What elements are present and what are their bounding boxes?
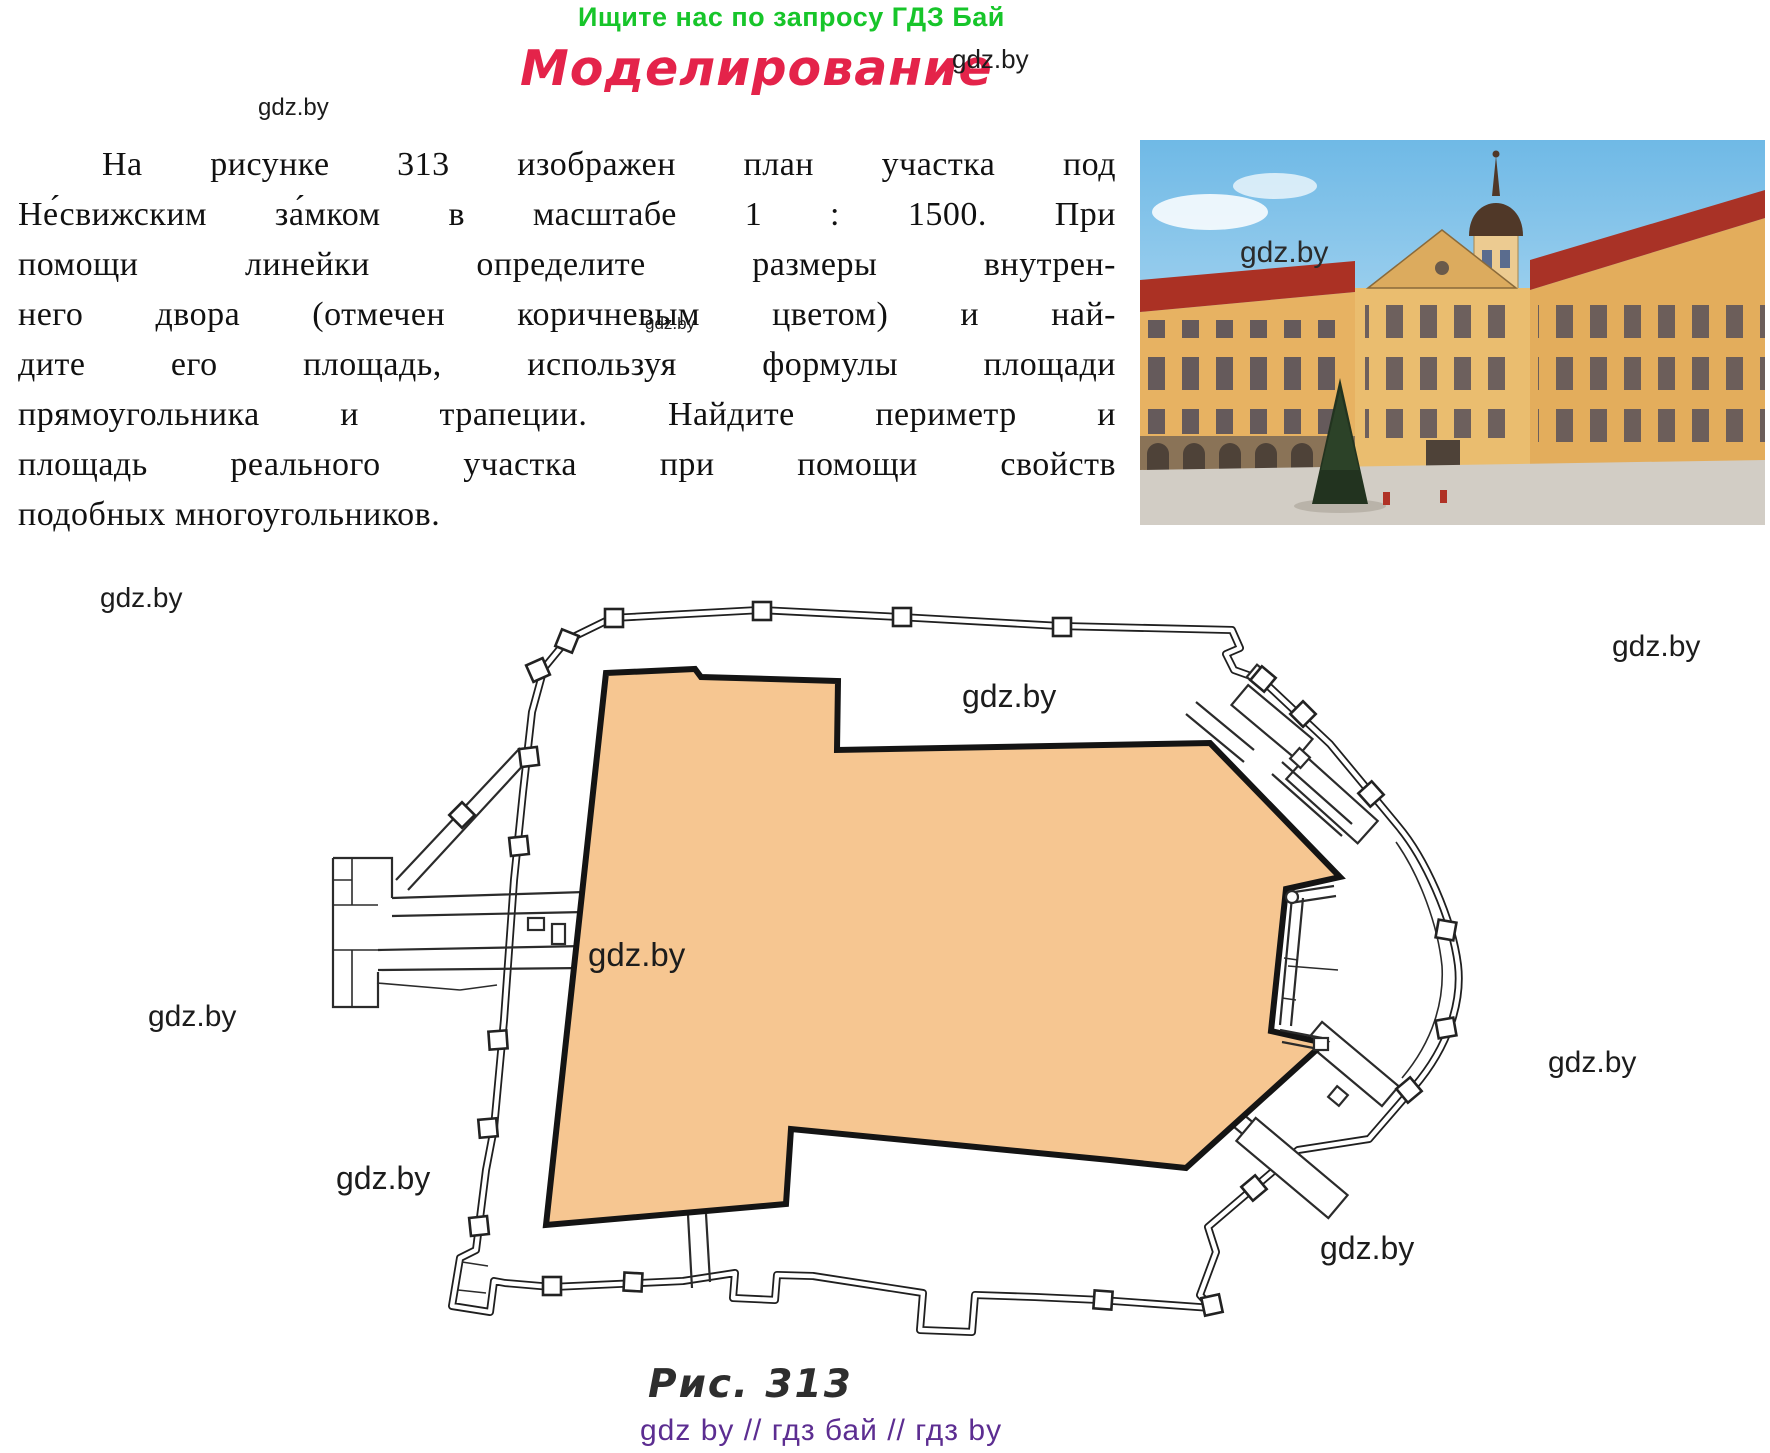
watermark-gdz-photo: gdz.by bbox=[1240, 236, 1328, 270]
watermark-gdz-bottom-left: gdz.by bbox=[336, 1160, 430, 1197]
se-bastion bbox=[1190, 1022, 1399, 1218]
task-paragraph: На рисунке 313 изображен план участка по… bbox=[18, 140, 1116, 540]
watermark-gdz-above-paragraph: gdz.by bbox=[258, 94, 329, 122]
paragraph-line: прямоугольника и трапеции. Найдите перим… bbox=[18, 390, 1116, 440]
page-title: Моделирование bbox=[520, 40, 993, 97]
castle-photo-art bbox=[1140, 140, 1765, 525]
tower-window bbox=[1500, 250, 1510, 268]
cloud bbox=[1152, 194, 1268, 230]
tower-spire-ball bbox=[1493, 151, 1500, 158]
red-bollard bbox=[1440, 490, 1447, 503]
right-wing-windows bbox=[1538, 298, 1765, 450]
red-bollard bbox=[1383, 492, 1390, 505]
left-wing-windows bbox=[1148, 320, 1348, 434]
palace-pier bbox=[528, 918, 544, 930]
promo-header: Ищите нас по запросу ГДЗ Бай bbox=[578, 2, 1005, 33]
palace-pier bbox=[552, 924, 565, 944]
paragraph-line: него двора (отмечен коричневым цветом) и… bbox=[18, 290, 1116, 340]
watermark-gdz-plan-center: gdz.by bbox=[588, 936, 685, 974]
south-passage bbox=[688, 1214, 710, 1288]
ne-bastion bbox=[1186, 665, 1378, 844]
paragraph-line: На рисунке 313 изображен план участка по… bbox=[18, 140, 1116, 190]
central-windows bbox=[1365, 298, 1520, 438]
castle-photo: gdz.by bbox=[1140, 140, 1765, 525]
paragraph-line: помощи линейки определите размеры внутре… bbox=[18, 240, 1116, 290]
figure-caption: Рис. 313 bbox=[648, 1362, 853, 1407]
watermark-gdz-in-paragraph: gdz.by bbox=[645, 314, 695, 334]
paragraph-line: дите его площадь, используя формулы площ… bbox=[18, 340, 1116, 390]
watermark-gdz-right-top: gdz.by bbox=[1612, 630, 1700, 664]
textbook-page: Ищите нас по запросу ГДЗ Бай Моделирован… bbox=[0, 0, 1770, 1453]
watermark-gdz-left-middle: gdz.by bbox=[148, 1000, 236, 1034]
courtyard-ground bbox=[1140, 460, 1765, 525]
wall-tower bbox=[449, 802, 474, 827]
watermark-gdz-plan-top: gdz.by bbox=[962, 678, 1056, 715]
cloud bbox=[1233, 173, 1317, 199]
paragraph-line: Не́свижским за́мком в масштабе 1 : 1500.… bbox=[18, 190, 1116, 240]
watermark-gdz-bottom-right: gdz.by bbox=[1320, 1230, 1414, 1267]
sw-gate-detail bbox=[458, 1262, 488, 1293]
watermark-gdz-left-upper: gdz.by bbox=[100, 582, 183, 614]
watermark-gdz-right-middle: gdz.by bbox=[1548, 1046, 1636, 1080]
footer-links: gdz by // гдз бай // гдз by bbox=[640, 1414, 1002, 1448]
paragraph-line: площадь реального участка при помощи сво… bbox=[18, 440, 1116, 490]
paragraph-line: подобных многоугольников. bbox=[18, 490, 1116, 540]
notch-wall bbox=[1280, 886, 1338, 1050]
watermark-gdz-title: gdz.by bbox=[952, 44, 1029, 75]
pediment-window bbox=[1435, 261, 1449, 275]
palace-structures bbox=[333, 748, 585, 1007]
